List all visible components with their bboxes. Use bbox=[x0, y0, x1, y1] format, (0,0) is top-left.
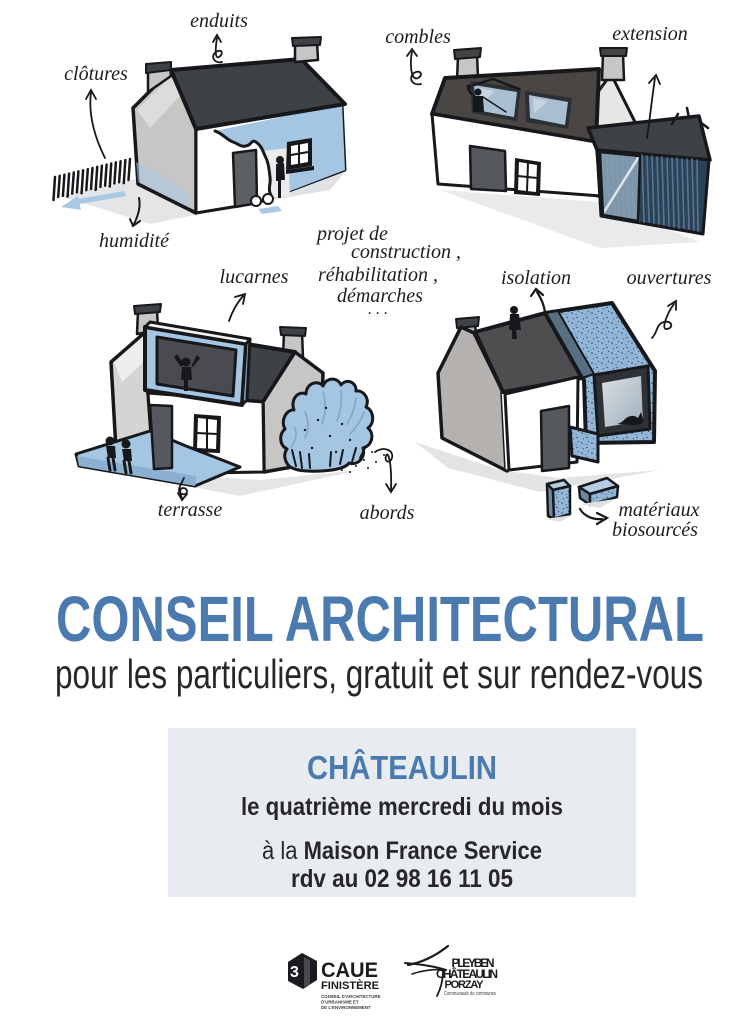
svg-text:CONSEIL D'ARCHITECTURE: CONSEIL D'ARCHITECTURE bbox=[321, 994, 381, 999]
svg-text:ouvertures: ouvertures bbox=[627, 267, 712, 289]
svg-text:PORZAY: PORZAY bbox=[445, 979, 485, 991]
svg-text:DE L'ENVIRONNEMENT: DE L'ENVIRONNEMENT bbox=[321, 1005, 371, 1010]
svg-text:réhabilitation ,: réhabilitation , bbox=[318, 264, 438, 286]
svg-text:extension: extension bbox=[612, 23, 688, 45]
svg-text:isolation: isolation bbox=[501, 267, 571, 289]
svg-text:Communauté de communes: Communauté de communes bbox=[444, 991, 496, 997]
svg-text:3: 3 bbox=[290, 964, 299, 981]
svg-text:terrasse: terrasse bbox=[158, 499, 223, 521]
svg-text:clôtures: clôtures bbox=[64, 63, 128, 85]
svg-text:rdv au 02 98 16 11 05: rdv au 02 98 16 11 05 bbox=[291, 865, 513, 893]
svg-text:enduits: enduits bbox=[190, 10, 248, 32]
svg-text:le quatrième mercredi du mois: le quatrième mercredi du mois bbox=[241, 793, 563, 821]
svg-text:lucarnes: lucarnes bbox=[220, 266, 289, 288]
svg-text:abords: abords bbox=[360, 502, 415, 524]
svg-text:CHÂTEAULIN: CHÂTEAULIN bbox=[307, 749, 497, 786]
svg-text:CAUE: CAUE bbox=[321, 959, 378, 982]
svg-text:humidité: humidité bbox=[99, 230, 170, 252]
svg-text:D'URBANISME ET: D'URBANISME ET bbox=[321, 1000, 359, 1005]
svg-text:. . .: . . . bbox=[368, 301, 388, 318]
svg-text:FINISTÈRE: FINISTÈRE bbox=[321, 979, 379, 992]
svg-text:pour les particuliers, gratuit: pour les particuliers, gratuit et sur re… bbox=[55, 651, 703, 697]
svg-text:matériaux: matériaux bbox=[618, 499, 699, 521]
svg-text:CONSEIL ARCHITECTURAL: CONSEIL ARCHITECTURAL bbox=[56, 583, 704, 655]
svg-text:construction ,: construction , bbox=[351, 241, 461, 263]
svg-text:biosourcés: biosourcés bbox=[612, 519, 698, 541]
svg-text:à la Maison France Service: à la Maison France Service bbox=[262, 837, 542, 865]
svg-text:combles: combles bbox=[385, 26, 451, 48]
